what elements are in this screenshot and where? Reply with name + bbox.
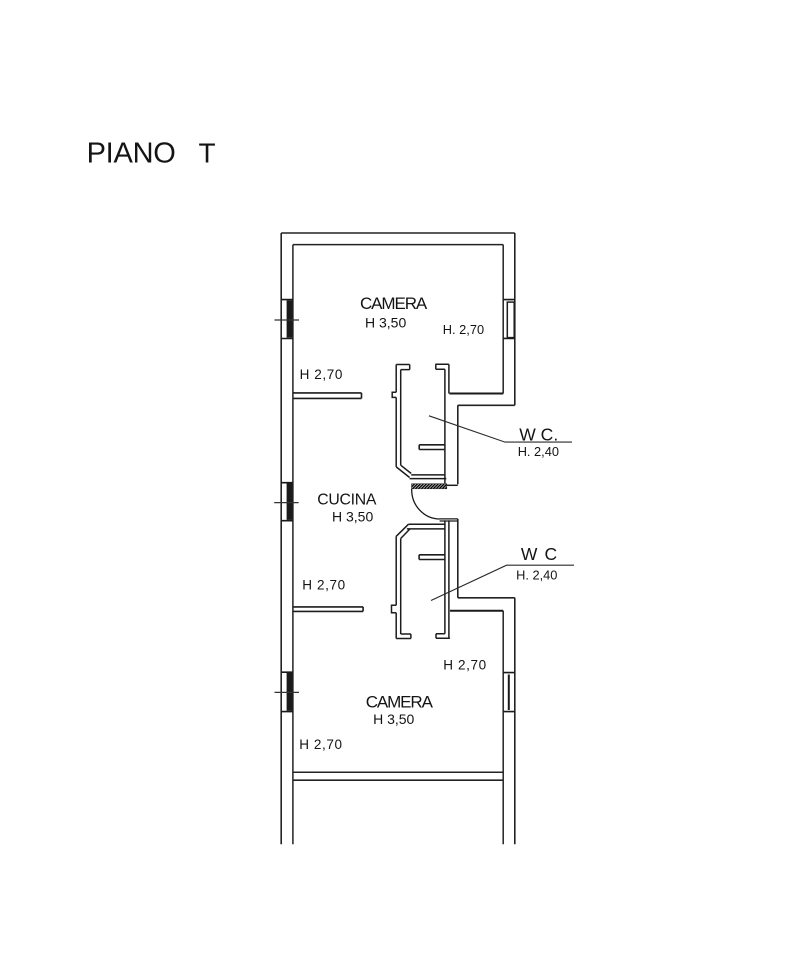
svg-text:T: T [199, 137, 216, 168]
svg-text:W C.: W C. [519, 425, 558, 445]
svg-text:H 2,70: H 2,70 [302, 578, 345, 593]
svg-text:CAMERA: CAMERA [366, 693, 434, 712]
svg-text:H 2,70: H 2,70 [299, 737, 342, 752]
svg-text:H 2,70: H 2,70 [443, 658, 486, 673]
svg-text:H 3,50: H 3,50 [332, 508, 373, 524]
svg-text:PIANO: PIANO [87, 137, 176, 169]
svg-text:H. 2,40: H. 2,40 [518, 444, 559, 459]
svg-text:H. 2,40: H. 2,40 [516, 568, 557, 583]
svg-text:H 3,50: H 3,50 [373, 711, 414, 727]
svg-text:W C: W C [521, 544, 558, 564]
svg-text:CAMERA: CAMERA [360, 294, 428, 313]
svg-text:H. 2,70: H. 2,70 [443, 322, 484, 337]
svg-text:CUCINA: CUCINA [317, 492, 377, 509]
svg-text:H 2,70: H 2,70 [300, 367, 343, 382]
svg-text:H 3,50: H 3,50 [365, 314, 406, 330]
